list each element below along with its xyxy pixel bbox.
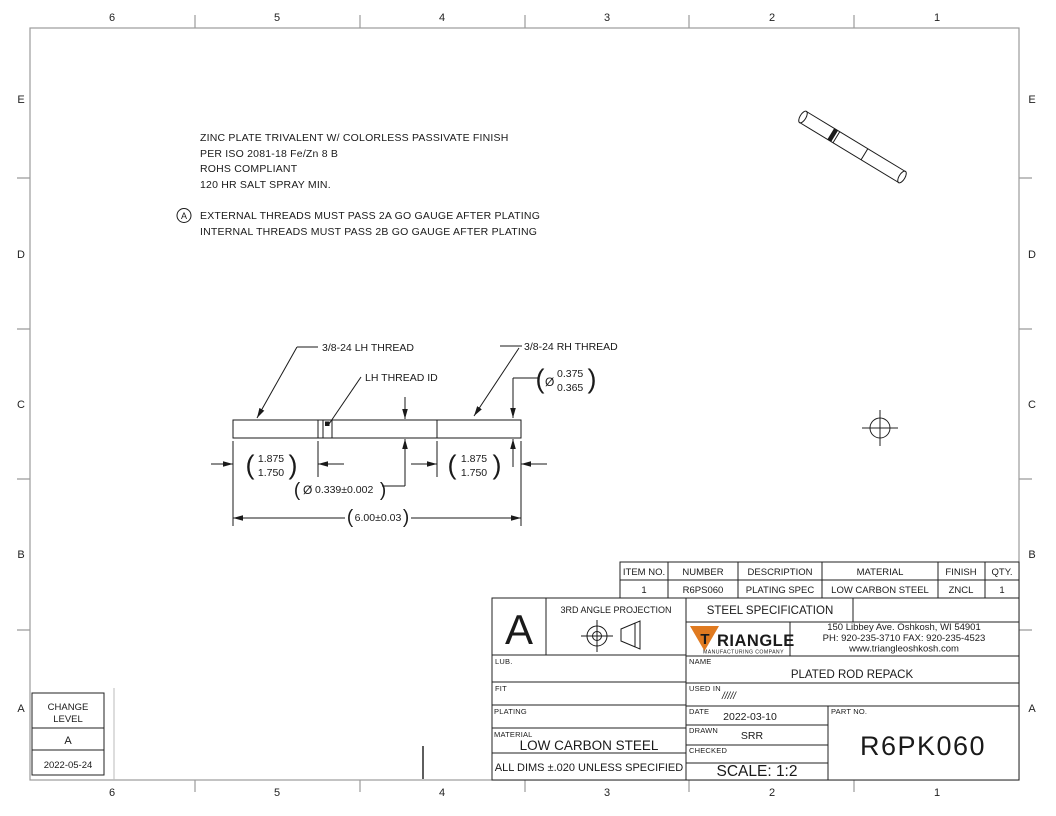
logo-wordmark: RIANGLE bbox=[717, 632, 795, 650]
projection-label: 3RD ANGLE PROJECTION bbox=[560, 605, 671, 615]
paren: ) bbox=[403, 507, 409, 528]
cell-finish: ZNCL bbox=[949, 585, 974, 596]
name-label: NAME bbox=[689, 657, 711, 666]
leader-dot bbox=[325, 422, 330, 427]
cell-item-no: 1 bbox=[641, 585, 646, 596]
col-header: FINISH bbox=[945, 567, 976, 578]
col-header: MATERIAL bbox=[857, 567, 904, 578]
flag-note-letter: A bbox=[181, 211, 187, 221]
zone-row-label: B bbox=[17, 549, 24, 561]
col-header: QTY. bbox=[992, 567, 1013, 578]
zone-col-label: 4 bbox=[439, 787, 445, 799]
callout-lh-thread: 3/8-24 LH THREAD bbox=[322, 342, 414, 354]
zone-col-label: 1 bbox=[934, 12, 940, 24]
paren: ) bbox=[493, 450, 502, 480]
dim-right-lower: 1.750 bbox=[461, 467, 487, 479]
col-header: ITEM NO. bbox=[623, 567, 665, 578]
zone-row-label: C bbox=[1028, 399, 1036, 411]
diameter-symbol: Ø bbox=[545, 375, 554, 389]
dimensions: ( 1.875 1.750 ) ( 1.875 1.750 ) ( Ø 0.33… bbox=[211, 364, 597, 528]
change-level-value: A bbox=[64, 735, 72, 747]
zone-col-label: 3 bbox=[604, 787, 610, 799]
zone-row-label: E bbox=[1028, 94, 1035, 106]
lub-label: LUB. bbox=[495, 657, 512, 666]
paren: ( bbox=[448, 450, 457, 480]
note-line: ZINC PLATE TRIVALENT W/ COLORLESS PASSIV… bbox=[200, 132, 509, 144]
fit-label: FIT bbox=[495, 684, 507, 693]
diameter-symbol: Ø bbox=[303, 483, 312, 497]
dim-dia-lower: 0.365 bbox=[557, 382, 583, 394]
part-no-value: R6PK060 bbox=[860, 731, 986, 761]
zone-col-label: 2 bbox=[769, 787, 775, 799]
change-level-title: CHANGE bbox=[48, 702, 89, 713]
zone-row-label: A bbox=[1028, 703, 1036, 715]
zone-row-label: B bbox=[1028, 549, 1035, 561]
zone-col-label: 6 bbox=[109, 12, 115, 24]
note-line: EXTERNAL THREADS MUST PASS 2A GO GAUGE A… bbox=[200, 210, 540, 222]
dim-dia-upper: 0.375 bbox=[557, 368, 583, 380]
col-header: NUMBER bbox=[682, 567, 723, 578]
zone-row-label: E bbox=[17, 94, 24, 106]
company-address: 150 Libbey Ave. Oshkosh, WI 54901 bbox=[827, 622, 981, 633]
callout-lh-thread-id: LH THREAD ID bbox=[365, 372, 438, 384]
zone-col-label: 5 bbox=[274, 787, 280, 799]
used-in-label: USED IN bbox=[689, 684, 721, 693]
logo-initial: T bbox=[700, 631, 709, 648]
zone-col-label: 1 bbox=[934, 787, 940, 799]
zone-row-label: A bbox=[17, 703, 25, 715]
change-level-block: CHANGE LEVEL A 2022-05-24 bbox=[32, 693, 104, 775]
parts-table: ITEM NO. NUMBER DESCRIPTION MATERIAL FIN… bbox=[620, 562, 1019, 598]
zone-row-label: D bbox=[1028, 249, 1036, 261]
col-header: DESCRIPTION bbox=[748, 567, 813, 578]
zone-col-label: 5 bbox=[274, 12, 280, 24]
note-line: PER ISO 2081-18 Fe/Zn 8 B bbox=[200, 148, 338, 160]
zone-col-label: 6 bbox=[109, 787, 115, 799]
drawn-value: SRR bbox=[741, 730, 764, 742]
dim-overall: 6.00±0.03 bbox=[355, 512, 402, 524]
company-phone: PH: 920-235-3710 FAX: 920-235-4523 bbox=[823, 633, 986, 644]
spec-header: STEEL SPECIFICATION bbox=[707, 605, 834, 617]
company-website: www.triangleoshkosh.com bbox=[848, 644, 959, 655]
scale-text: SCALE: 1:2 bbox=[717, 763, 798, 780]
paren: ( bbox=[294, 480, 301, 501]
change-level-title: LEVEL bbox=[53, 714, 83, 725]
paren: ) bbox=[380, 480, 386, 501]
note-line: INTERNAL THREADS MUST PASS 2B GO GAUGE A… bbox=[200, 226, 537, 238]
used-in-value: ///// bbox=[721, 691, 737, 702]
date-value: 2022-03-10 bbox=[723, 711, 777, 723]
drawn-label: DRAWN bbox=[689, 726, 718, 735]
front-rod-view bbox=[233, 420, 521, 438]
paren: ( bbox=[536, 364, 545, 394]
cell-number: R6PS060 bbox=[683, 585, 724, 596]
dim-mid-diameter: 0.339±0.002 bbox=[315, 484, 373, 496]
title-block: A 3RD ANGLE PROJECTION STEEL SPECIFICATI… bbox=[492, 598, 1019, 780]
paren: ( bbox=[347, 507, 354, 528]
plating-label: PLATING bbox=[494, 707, 527, 716]
zone-row-label: C bbox=[17, 399, 25, 411]
cell-qty: 1 bbox=[999, 585, 1004, 596]
general-notes: ZINC PLATE TRIVALENT W/ COLORLESS PASSIV… bbox=[177, 132, 540, 238]
registration-mark bbox=[862, 410, 898, 446]
drawing-canvas: 6 5 4 3 2 1 6 5 4 3 2 1 E D C B A E D C … bbox=[0, 0, 1056, 816]
zone-col-label: 4 bbox=[439, 12, 445, 24]
paren: ) bbox=[289, 450, 298, 480]
dim-left-upper: 1.875 bbox=[258, 453, 284, 465]
material-value: LOW CARBON STEEL bbox=[520, 738, 659, 753]
dim-right-upper: 1.875 bbox=[461, 453, 487, 465]
dim-left-lower: 1.750 bbox=[258, 467, 284, 479]
zone-col-label: 3 bbox=[604, 12, 610, 24]
change-letter-display: A bbox=[505, 606, 533, 653]
cell-material: LOW CARBON STEEL bbox=[831, 585, 929, 596]
zone-col-label: 2 bbox=[769, 12, 775, 24]
note-line: ROHS COMPLIANT bbox=[200, 163, 298, 175]
note-line: 120 HR SALT SPRAY MIN. bbox=[200, 179, 331, 191]
part-name-value: PLATED ROD REPACK bbox=[791, 669, 914, 681]
engineering-drawing-sheet: 6 5 4 3 2 1 6 5 4 3 2 1 E D C B A E D C … bbox=[0, 0, 1056, 816]
paren: ) bbox=[588, 364, 597, 394]
change-date: 2022-05-24 bbox=[44, 760, 93, 771]
paren: ( bbox=[246, 450, 255, 480]
checked-label: CHECKED bbox=[689, 746, 727, 755]
part-no-label: PART NO. bbox=[831, 707, 867, 716]
date-label: DATE bbox=[689, 707, 709, 716]
callout-rh-thread: 3/8-24 RH THREAD bbox=[524, 341, 618, 353]
cell-description: PLATING SPEC bbox=[746, 585, 815, 596]
isometric-rod-view bbox=[797, 110, 908, 184]
logo-tagline: MANUFACTURING COMPANY bbox=[703, 650, 784, 656]
zone-row-label: D bbox=[17, 249, 25, 261]
tolerance-note: ALL DIMS ±.020 UNLESS SPECIFIED bbox=[495, 762, 683, 774]
